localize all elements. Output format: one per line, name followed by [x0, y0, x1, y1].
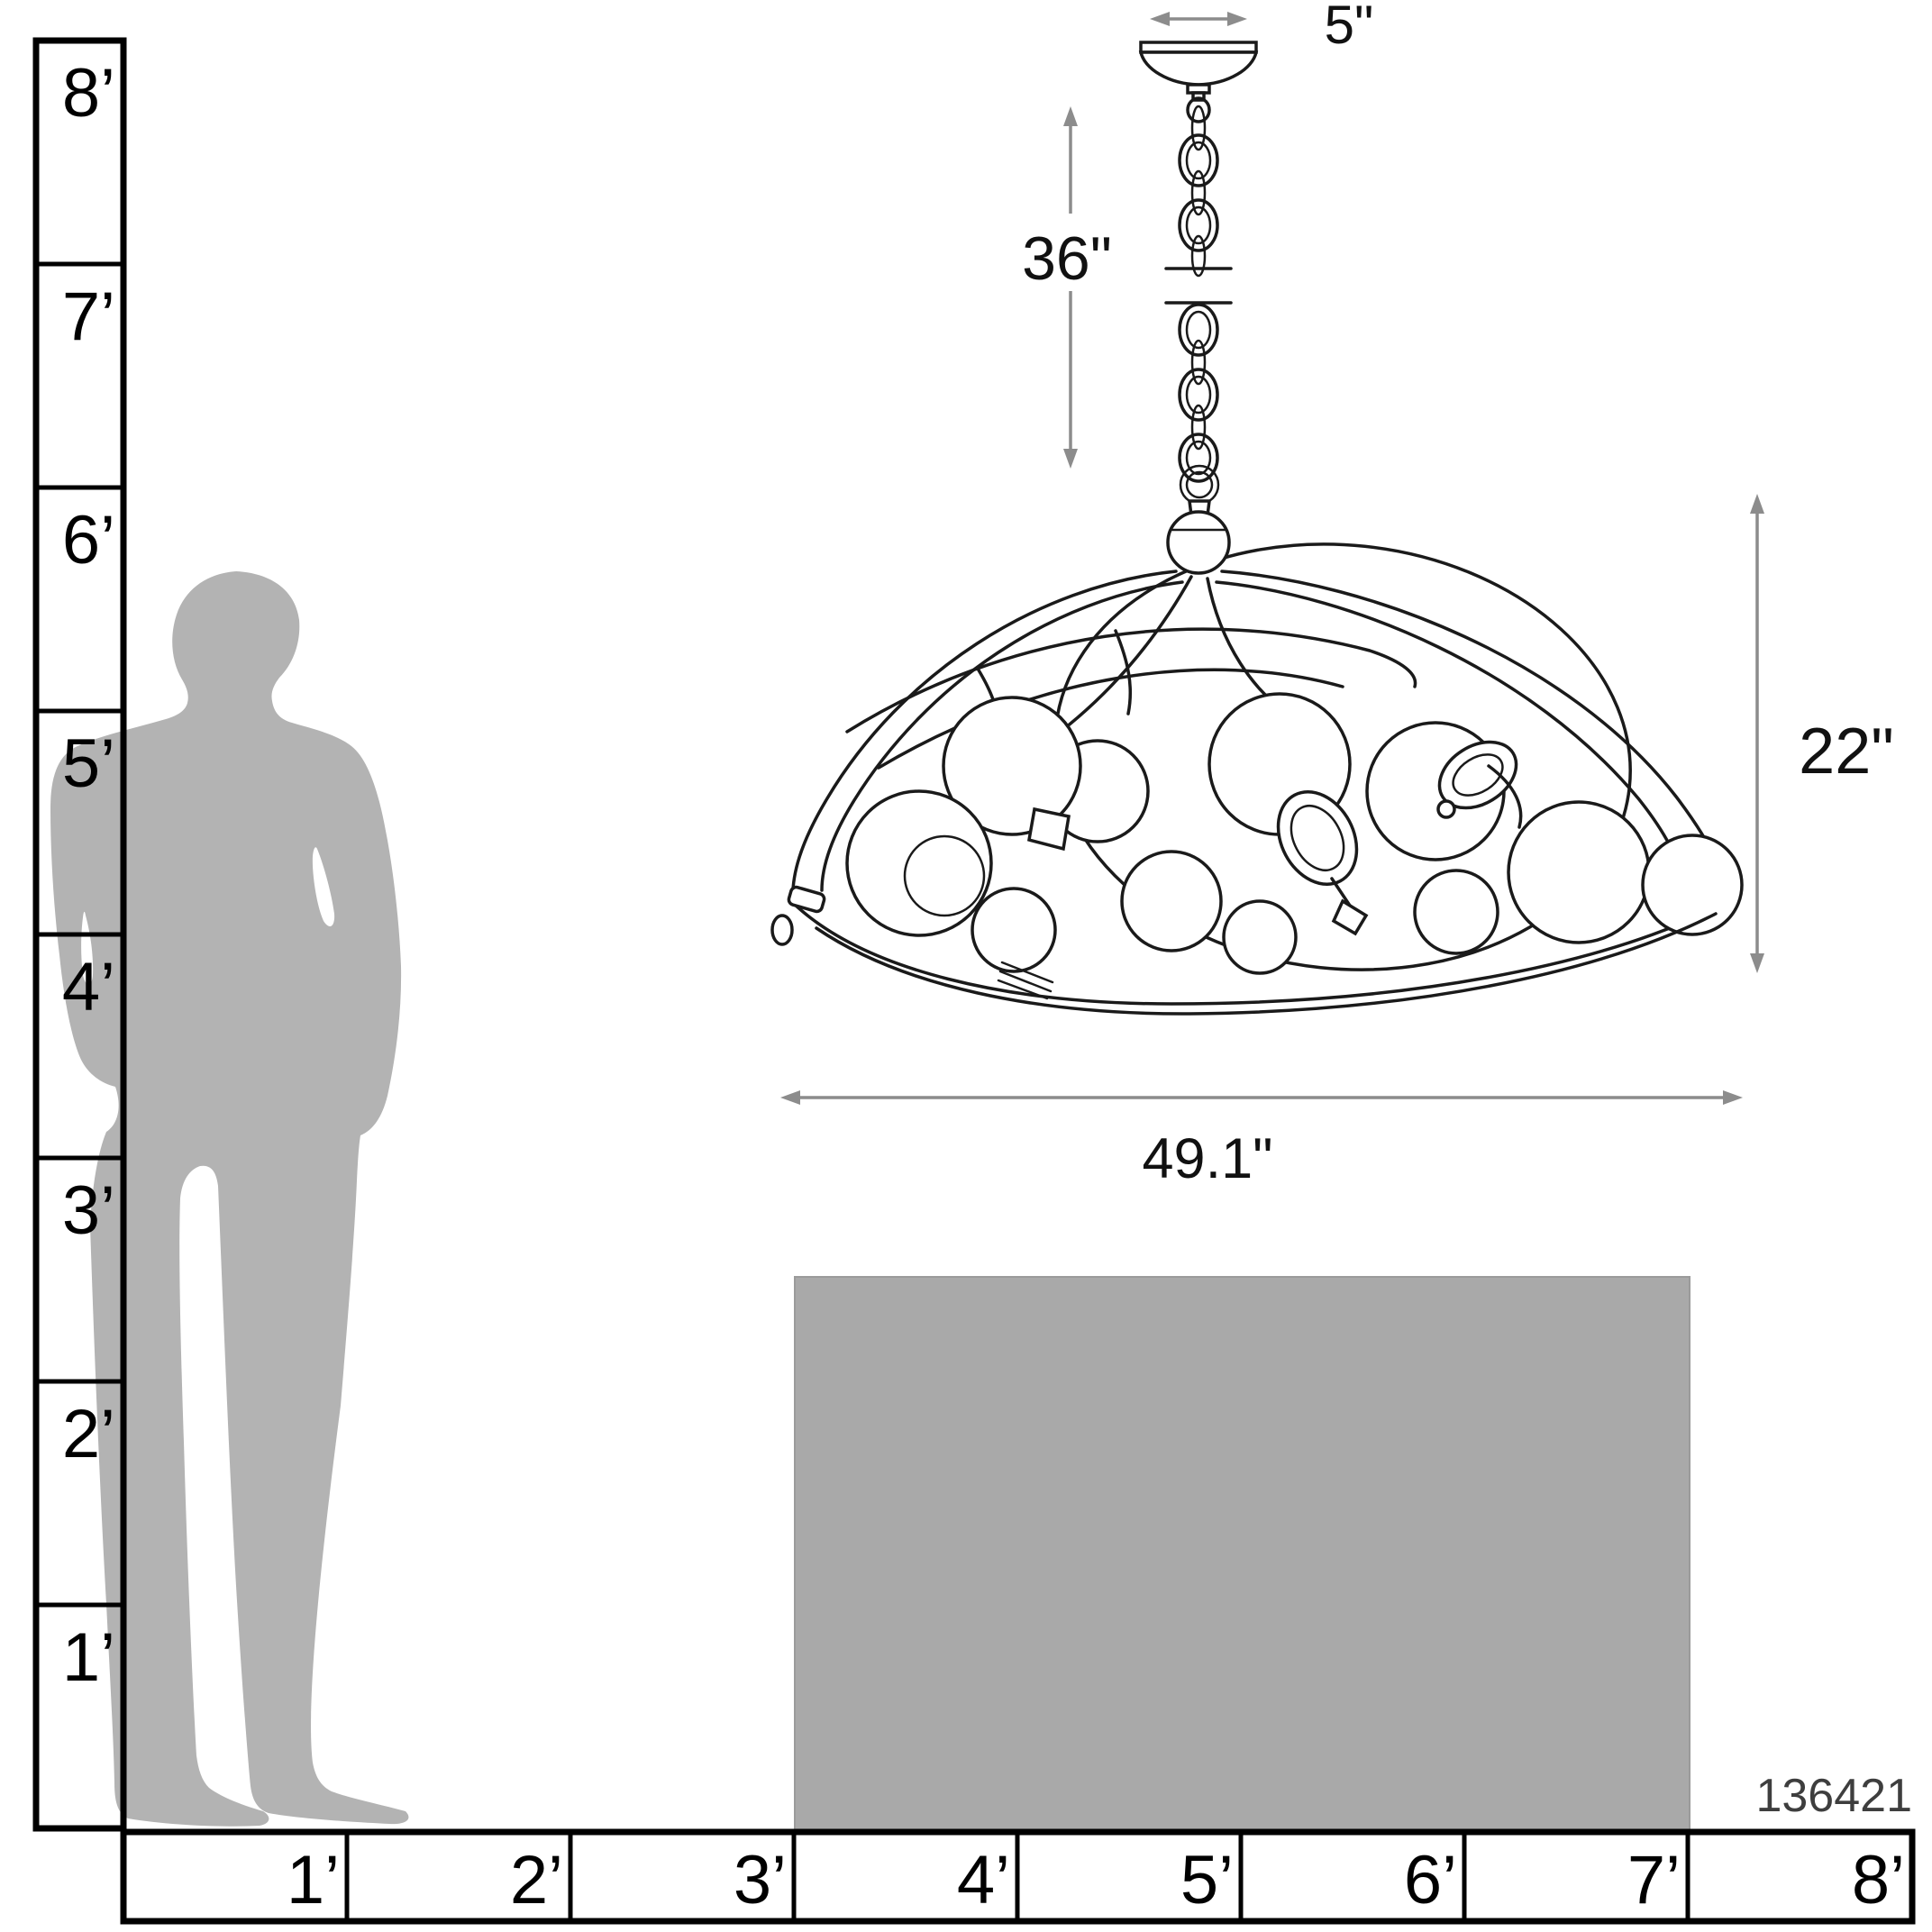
arrow-left-icon — [1150, 12, 1170, 26]
vertical-ruler-label: 6’ — [62, 502, 115, 579]
horizontal-ruler-label: 1’ — [287, 1842, 340, 1918]
globe — [972, 889, 1055, 971]
horizontal-ruler: 1’ 2’ 3’ 4’ 5’ 6’ 7’ 8’ — [123, 1832, 1912, 1921]
fixture-height-label: 22" — [1799, 715, 1894, 788]
arrow-down-icon — [1750, 953, 1764, 973]
diagram-svg: 8’ 7’ 6’ 5’ 4’ 3’ 2’ 1’ 1’ 2’ 3’ 4’ 5’ 6… — [0, 0, 1932, 1932]
arrow-right-icon — [1227, 12, 1247, 26]
arrow-left-icon — [780, 1090, 800, 1105]
chain-link — [1187, 142, 1210, 178]
dim-chain-length: 36" — [1022, 106, 1112, 469]
vertical-ruler-label: 5’ — [62, 725, 115, 802]
vertical-ruler-label: 7’ — [62, 278, 115, 355]
arrow-down-icon — [1063, 449, 1078, 469]
globe — [1415, 870, 1498, 953]
vertical-ruler-label: 8’ — [62, 55, 115, 132]
product-number: 136421 — [1755, 1770, 1912, 1822]
dim-fixture-width: 49.1" — [780, 1090, 1743, 1190]
globe — [847, 791, 991, 935]
chain-link — [1187, 207, 1210, 243]
ceiling-canopy — [1141, 42, 1256, 122]
dim-fixture-height: 22" — [1750, 494, 1894, 973]
socket-knob — [1438, 801, 1454, 817]
globe — [1643, 835, 1742, 934]
finial-ball — [1168, 512, 1229, 573]
fixture-width-label: 49.1" — [1143, 1127, 1273, 1190]
chandelier-drawing — [772, 42, 1742, 1014]
horizontal-ruler-label: 8’ — [1852, 1842, 1905, 1918]
table-block — [795, 1277, 1690, 1832]
globe — [1508, 802, 1649, 943]
horizontal-ruler-label: 3’ — [734, 1842, 787, 1918]
canopy-loop — [1188, 98, 1209, 122]
chain-link — [1187, 377, 1210, 413]
socket-cone — [1334, 901, 1366, 934]
cage-end-knob — [772, 916, 792, 944]
vertical-ruler-label: 3’ — [62, 1172, 115, 1249]
horizontal-ruler-label: 7’ — [1627, 1842, 1681, 1918]
size-reference-diagram: 8’ 7’ 6’ 5’ 4’ 3’ 2’ 1’ 1’ 2’ 3’ 4’ 5’ 6… — [0, 0, 1932, 1932]
vertical-ruler-label: 1’ — [62, 1619, 115, 1696]
arrow-up-icon — [1750, 494, 1764, 514]
cage-feeder-left — [1043, 577, 1191, 744]
socket-cone — [1029, 809, 1069, 849]
vertical-ruler-label: 2’ — [62, 1396, 115, 1472]
chain-link — [1187, 312, 1210, 348]
globe — [1122, 852, 1221, 951]
arrow-right-icon — [1723, 1090, 1743, 1105]
horizontal-ruler-label: 2’ — [510, 1842, 563, 1918]
horizontal-ruler-label: 4’ — [957, 1842, 1010, 1918]
arrow-up-icon — [1063, 106, 1078, 126]
hanging-chain — [1166, 106, 1231, 481]
finial-ring-inner — [1187, 472, 1212, 497]
chain-length-label: 36" — [1022, 224, 1112, 293]
vertical-ruler-label: 4’ — [62, 949, 115, 1025]
globe — [1224, 901, 1296, 973]
horizontal-ruler-label: 6’ — [1404, 1842, 1457, 1918]
cage-end-knob — [788, 886, 825, 913]
canopy-dish — [1141, 52, 1256, 85]
horizontal-ruler-label: 5’ — [1180, 1842, 1234, 1918]
canopy-width-label: 5" — [1325, 0, 1374, 55]
